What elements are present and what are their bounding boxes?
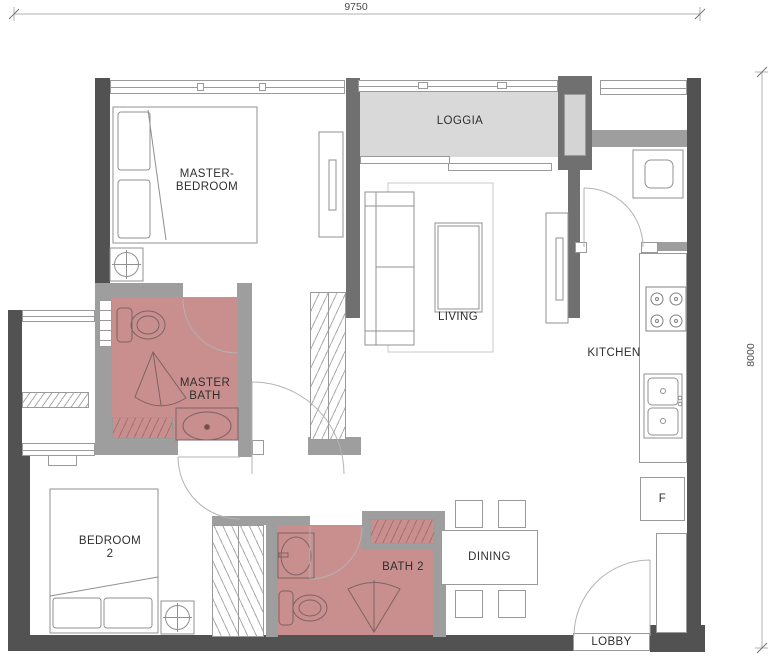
lobby-threshold: LOBBY [573, 633, 650, 651]
room-label-dining: DINING [468, 551, 511, 564]
wall [95, 440, 178, 455]
ceiling-fan-icon [161, 601, 194, 634]
tv-console-icon [546, 213, 568, 323]
chair-icon [498, 590, 526, 618]
wall [8, 445, 30, 651]
shelf-icon [370, 519, 435, 544]
sliding-door-panel [360, 156, 450, 164]
window-mullion [259, 83, 266, 91]
chair-icon [455, 500, 483, 528]
window [99, 300, 112, 347]
wall [240, 440, 252, 455]
room-label-bedroom2: BEDROOM 2 [50, 535, 170, 561]
window [600, 80, 687, 95]
wall [568, 148, 580, 318]
vanity-icon [112, 417, 173, 439]
balcony-rail [358, 80, 558, 92]
sliding-door-panel [448, 163, 552, 171]
sofa-icon [365, 192, 414, 345]
wall [656, 242, 687, 251]
chair-icon [455, 590, 483, 618]
entry-cabinet [656, 533, 687, 633]
fridge-label: F [659, 493, 666, 506]
rail-post [497, 82, 507, 89]
door-jamb [252, 440, 264, 455]
floorplan: F DINING LOBBY [0, 0, 768, 656]
room-label-living: LIVING [408, 311, 508, 324]
bed-icon [50, 489, 158, 633]
ceiling-fan-icon [110, 248, 143, 281]
room-label-master-bedroom: MASTER- BEDROOM [147, 168, 267, 194]
fridge-box: F [640, 477, 685, 521]
wall [346, 78, 360, 318]
tv-console-icon [319, 132, 343, 237]
dining-table-icon: DINING [441, 530, 538, 585]
curtain-box [48, 455, 77, 466]
room-label-loggia: LOGGIA [410, 115, 510, 128]
louvre-vent [22, 392, 89, 408]
room-label-lobby: LOBBY [591, 636, 631, 649]
louvre-panel [564, 94, 586, 156]
wall [266, 525, 278, 637]
wall [95, 283, 183, 297]
wall [8, 310, 22, 446]
window-mullion [197, 83, 204, 91]
rail-post [418, 82, 428, 89]
room-label-master-bath: MASTER BATH [155, 377, 255, 403]
door-jamb [575, 242, 587, 253]
wardrobe-icon [212, 525, 264, 637]
dimension-top: 9750 [326, 1, 386, 13]
wall [212, 516, 310, 525]
washing-machine-icon [633, 150, 683, 198]
room-label-kitchen: KITCHEN [564, 347, 664, 360]
wall [8, 635, 573, 651]
door-jamb [641, 242, 658, 253]
window [110, 80, 345, 94]
wall [238, 283, 252, 457]
chair-icon [498, 500, 526, 528]
wardrobe-icon [310, 292, 346, 440]
window [22, 310, 95, 322]
wall [687, 78, 701, 652]
wall [592, 130, 687, 147]
wall [95, 78, 110, 293]
coffee-table-icon [435, 223, 482, 312]
dimension-right: 8000 [745, 325, 759, 385]
rug-outline [388, 183, 493, 352]
room-label-bath2: BATH 2 [353, 561, 453, 574]
